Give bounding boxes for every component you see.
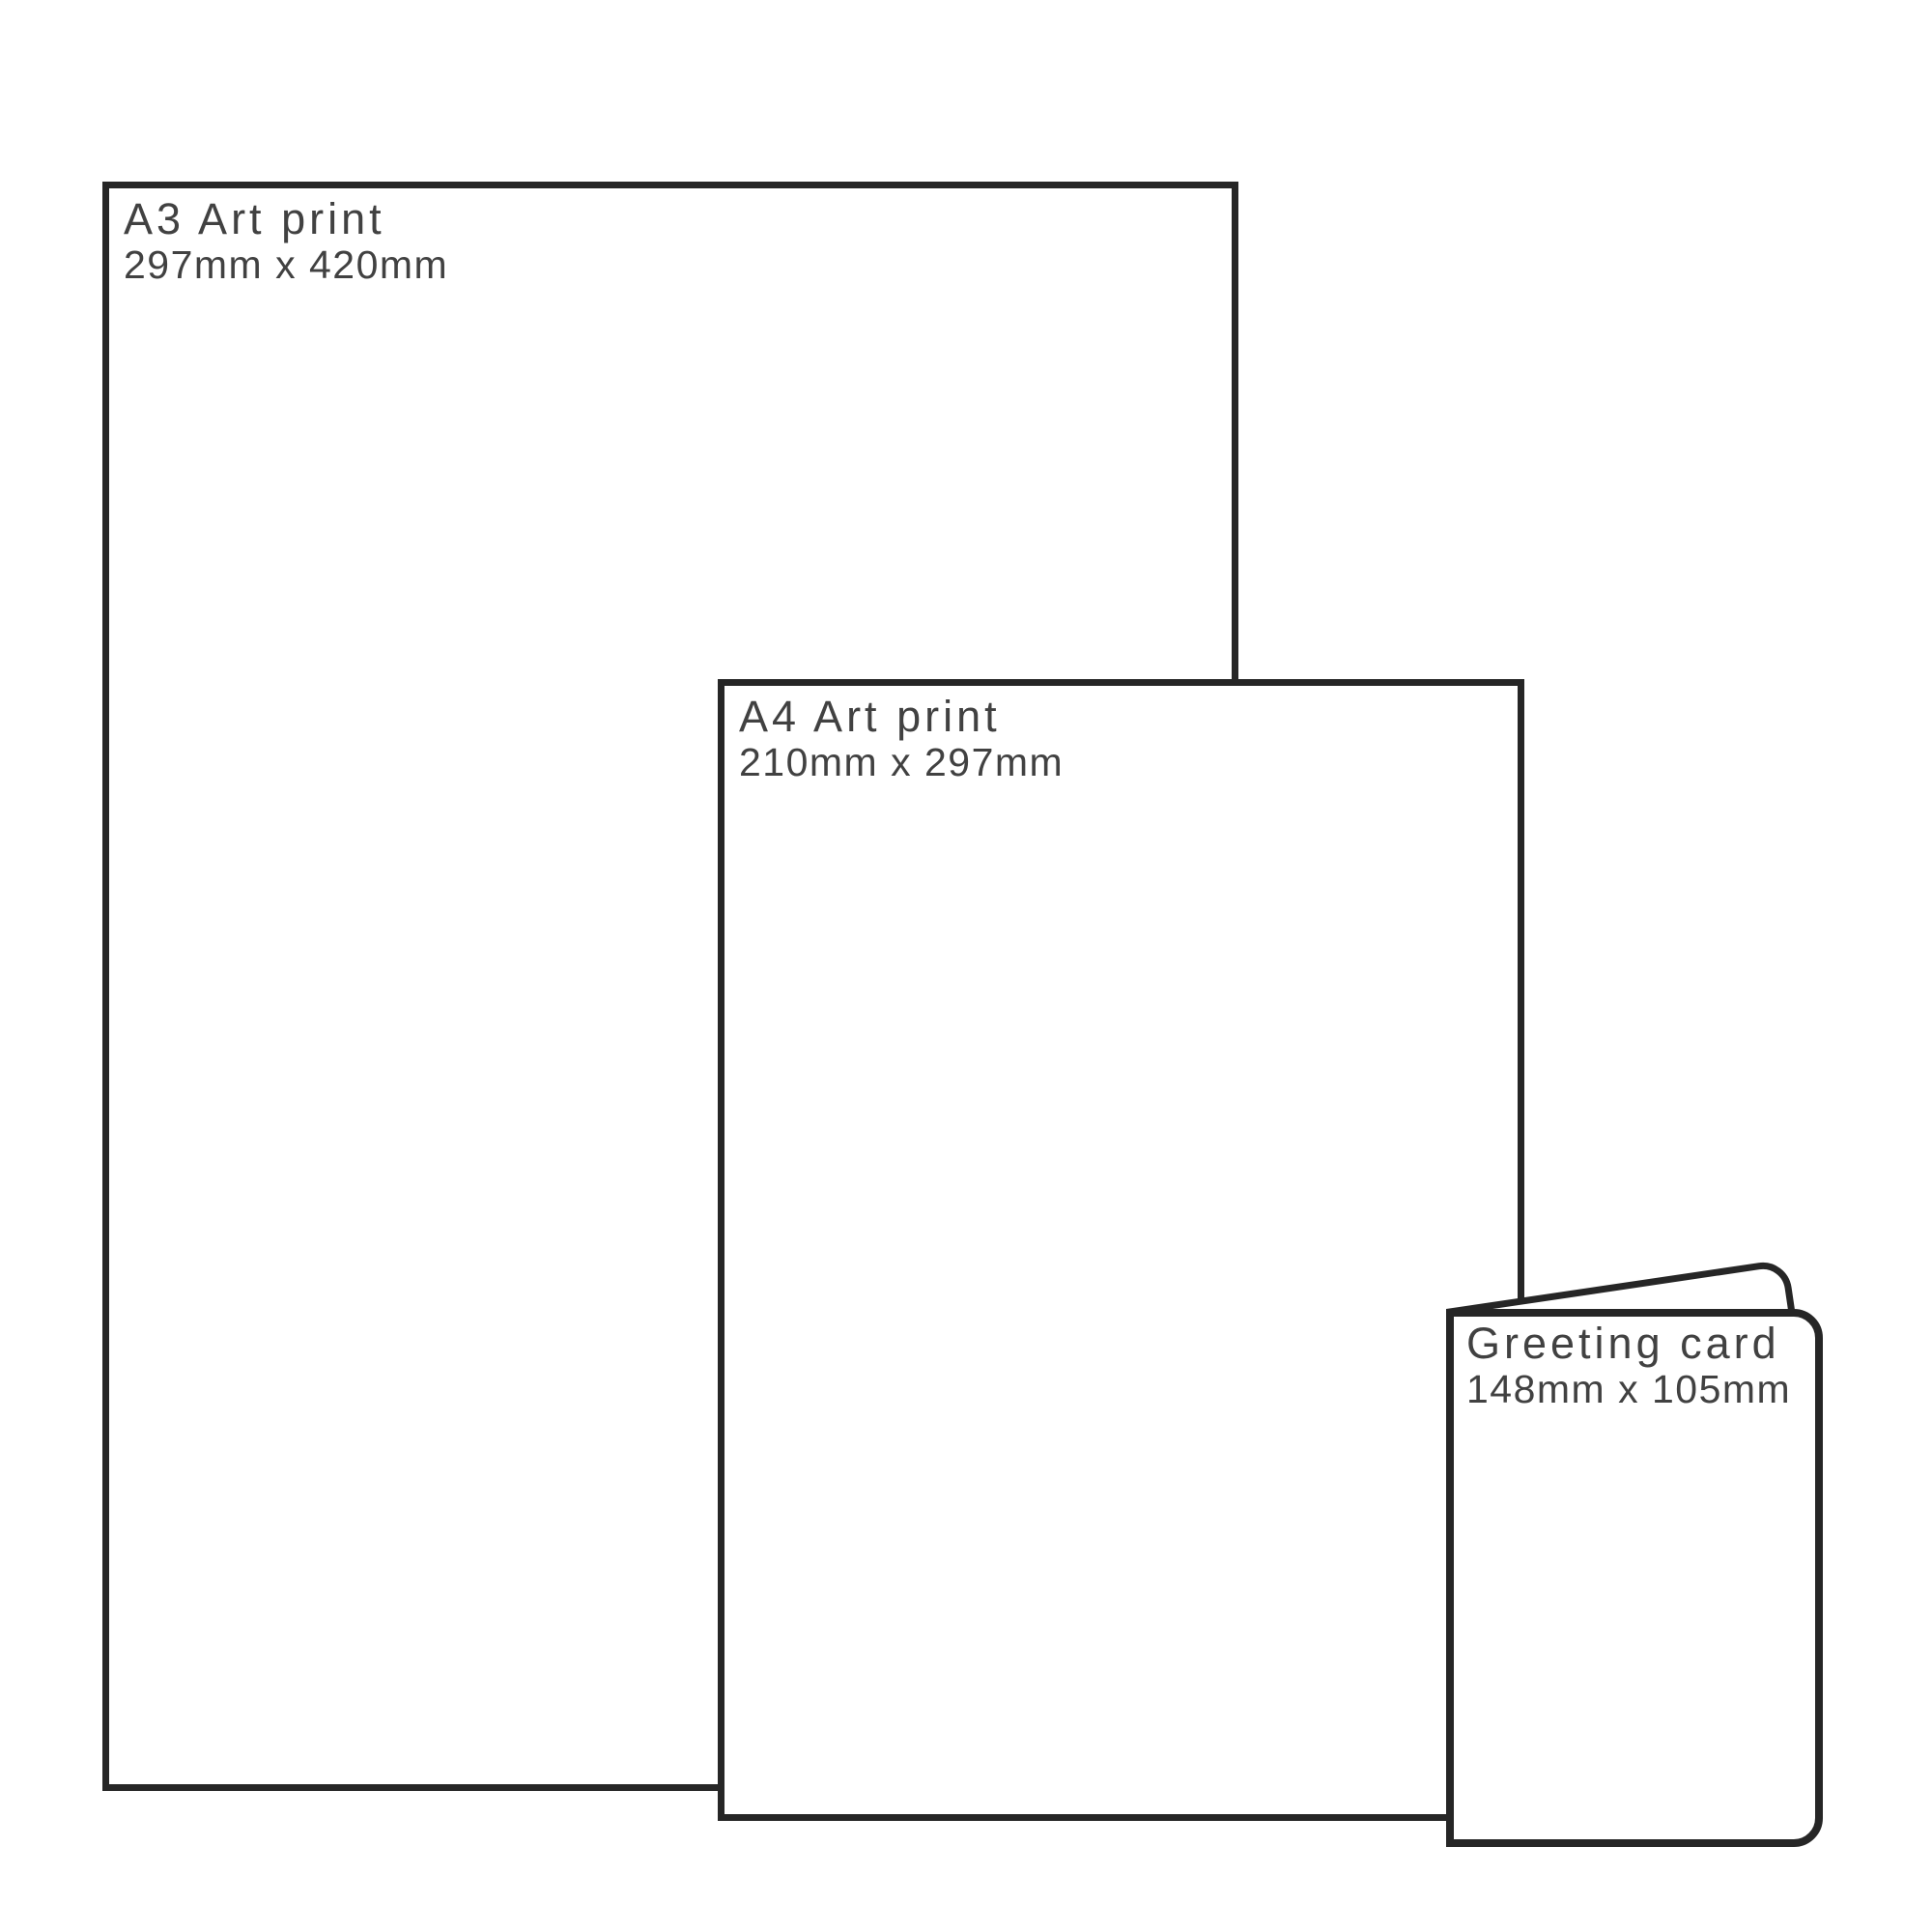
- a4-dimensions: 210mm x 297mm: [739, 741, 1518, 784]
- a4-title: A4 Art print: [739, 694, 1518, 739]
- greeting-card-label: Greeting card 148mm x 105mm: [1454, 1317, 1815, 1411]
- greeting-card-front: Greeting card 148mm x 105mm: [1446, 1309, 1823, 1847]
- greeting-card-dimensions: 148mm x 105mm: [1466, 1368, 1815, 1411]
- a3-title: A3 Art print: [124, 196, 1232, 241]
- a3-dimensions: 297mm x 420mm: [124, 243, 1232, 287]
- greeting-card-title: Greeting card: [1466, 1321, 1815, 1366]
- a4-print-outline: A4 Art print 210mm x 297mm: [718, 679, 1524, 1821]
- a3-label: A3 Art print 297mm x 420mm: [109, 188, 1232, 287]
- a4-label: A4 Art print 210mm x 297mm: [724, 686, 1518, 784]
- print-size-comparison-diagram: A3 Art print 297mm x 420mm A4 Art print …: [0, 0, 1932, 1932]
